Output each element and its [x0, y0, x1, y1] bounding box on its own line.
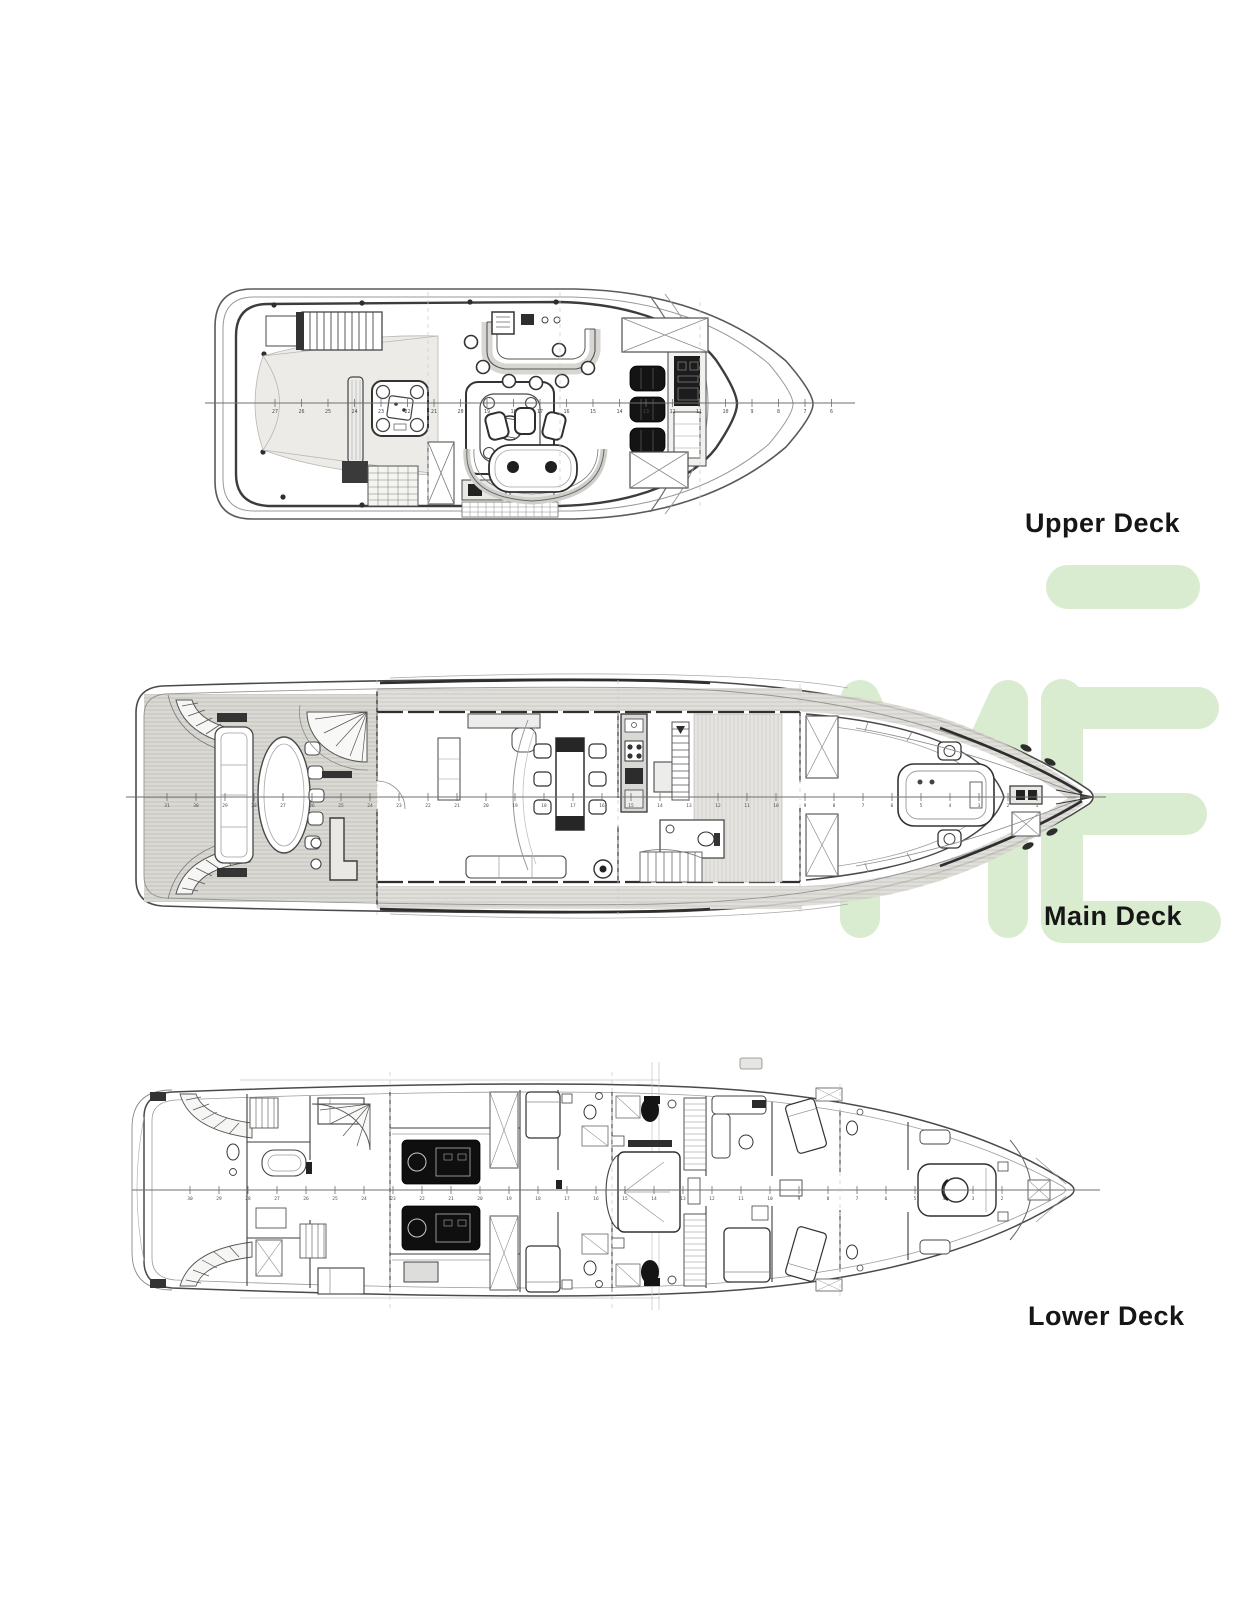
- svg-text:23: 23: [390, 1196, 396, 1202]
- svg-text:21: 21: [431, 409, 437, 415]
- deck-grate: [368, 466, 418, 506]
- svg-text:19: 19: [506, 1196, 512, 1202]
- helm-console: [898, 764, 994, 826]
- svg-text:10: 10: [773, 803, 779, 809]
- svg-text:4: 4: [943, 1196, 946, 1202]
- deck-plans-drawing: 2726252423222120191817161514131211109876: [0, 0, 1250, 1619]
- svg-text:6: 6: [891, 803, 894, 809]
- upper-deck-plan: 2726252423222120191817161514131211109876: [205, 289, 855, 519]
- svg-text:1: 1: [1036, 803, 1039, 809]
- svg-text:14: 14: [657, 803, 663, 809]
- svg-text:9: 9: [798, 1196, 801, 1202]
- svg-text:25: 25: [325, 409, 331, 415]
- svg-text:19: 19: [512, 803, 518, 809]
- svg-text:6: 6: [885, 1196, 888, 1202]
- lower-deck-label: Lower Deck: [1028, 1301, 1185, 1332]
- svg-text:18: 18: [535, 1196, 541, 1202]
- svg-text:15: 15: [628, 803, 634, 809]
- svg-text:2: 2: [1001, 1196, 1004, 1202]
- svg-text:24: 24: [351, 409, 357, 415]
- storage-hatch: [630, 452, 688, 488]
- svg-text:5: 5: [914, 1196, 917, 1202]
- sun-pad-aft: [622, 318, 708, 352]
- svg-text:16: 16: [593, 1196, 599, 1202]
- transom-seat: [215, 713, 253, 877]
- svg-text:25: 25: [338, 803, 344, 809]
- svg-text:22: 22: [425, 803, 431, 809]
- svg-text:5: 5: [920, 803, 923, 809]
- svg-text:27: 27: [272, 409, 278, 415]
- upper-deck-label: Upper Deck: [1025, 508, 1180, 539]
- svg-text:13: 13: [680, 1196, 686, 1202]
- svg-text:26: 26: [303, 1196, 309, 1202]
- storage-locker: [428, 442, 454, 504]
- engine-starboard: [402, 1206, 480, 1250]
- main-deck-plan: 3130292827262524232221201918171615141312…: [126, 674, 1106, 918]
- svg-text:16: 16: [599, 803, 605, 809]
- svg-text:30: 30: [187, 1196, 193, 1202]
- svg-text:20: 20: [483, 803, 489, 809]
- svg-text:21: 21: [448, 1196, 454, 1202]
- svg-text:29: 29: [216, 1196, 222, 1202]
- svg-text:7: 7: [862, 803, 865, 809]
- svg-text:18: 18: [510, 409, 516, 415]
- svg-text:21: 21: [454, 803, 460, 809]
- aft-deck-table: [258, 737, 324, 853]
- svg-text:12: 12: [669, 409, 675, 415]
- svg-text:2: 2: [1007, 803, 1010, 809]
- svg-text:20: 20: [477, 1196, 483, 1202]
- svg-text:9: 9: [804, 803, 807, 809]
- svg-text:14: 14: [651, 1196, 657, 1202]
- generator: [404, 1262, 438, 1282]
- side-deck-port: [377, 688, 802, 711]
- svg-text:13: 13: [686, 803, 692, 809]
- flybridge-stairs: [266, 312, 382, 350]
- svg-text:16: 16: [563, 409, 569, 415]
- svg-text:11: 11: [696, 409, 702, 415]
- svg-text:30: 30: [193, 803, 199, 809]
- svg-text:28: 28: [245, 1196, 251, 1202]
- svg-text:17: 17: [537, 409, 543, 415]
- svg-text:9: 9: [750, 409, 753, 415]
- svg-text:27: 27: [274, 1196, 280, 1202]
- svg-text:3: 3: [978, 803, 981, 809]
- svg-text:4: 4: [949, 803, 952, 809]
- svg-text:13: 13: [643, 409, 649, 415]
- svg-text:8: 8: [777, 409, 780, 415]
- dining-table: [489, 445, 577, 492]
- side-deck-starboard: [377, 886, 802, 909]
- svg-text:25: 25: [332, 1196, 338, 1202]
- lower-deck-plan: 3029282726252423222120191817161514131211…: [132, 1058, 1100, 1310]
- yacht-deck-plans-page: 2726252423222120191817161514131211109876: [0, 0, 1250, 1619]
- svg-text:12: 12: [715, 803, 721, 809]
- svg-text:7: 7: [803, 409, 806, 415]
- svg-text:10: 10: [722, 409, 728, 415]
- svg-text:19: 19: [484, 409, 490, 415]
- svg-text:15: 15: [590, 409, 596, 415]
- svg-text:6: 6: [830, 409, 833, 415]
- stairs-up: [672, 722, 689, 800]
- stairs-down: [640, 850, 702, 882]
- svg-text:24: 24: [361, 1196, 367, 1202]
- svg-text:18: 18: [541, 803, 547, 809]
- svg-text:11: 11: [738, 1196, 744, 1202]
- svg-text:12: 12: [709, 1196, 715, 1202]
- svg-text:22: 22: [404, 409, 410, 415]
- svg-text:26: 26: [309, 803, 315, 809]
- svg-text:10: 10: [767, 1196, 773, 1202]
- svg-text:27: 27: [280, 803, 286, 809]
- main-deck-label: Main Deck: [1044, 901, 1182, 932]
- svg-text:31: 31: [164, 803, 170, 809]
- svg-text:28: 28: [251, 803, 257, 809]
- svg-text:20: 20: [457, 409, 463, 415]
- svg-text:22: 22: [419, 1196, 425, 1202]
- svg-text:8: 8: [827, 1196, 830, 1202]
- svg-text:17: 17: [570, 803, 576, 809]
- svg-text:3: 3: [972, 1196, 975, 1202]
- svg-text:17: 17: [564, 1196, 570, 1202]
- svg-text:8: 8: [833, 803, 836, 809]
- svg-text:29: 29: [222, 803, 228, 809]
- svg-text:7: 7: [856, 1196, 859, 1202]
- svg-text:11: 11: [744, 803, 750, 809]
- svg-text:26: 26: [298, 409, 304, 415]
- svg-text:15: 15: [622, 1196, 628, 1202]
- svg-text:14: 14: [616, 409, 622, 415]
- svg-text:23: 23: [378, 409, 384, 415]
- svg-text:23: 23: [396, 803, 402, 809]
- engine-port: [402, 1140, 480, 1184]
- svg-text:24: 24: [367, 803, 373, 809]
- watermark-letter-e: [1062, 700, 1200, 922]
